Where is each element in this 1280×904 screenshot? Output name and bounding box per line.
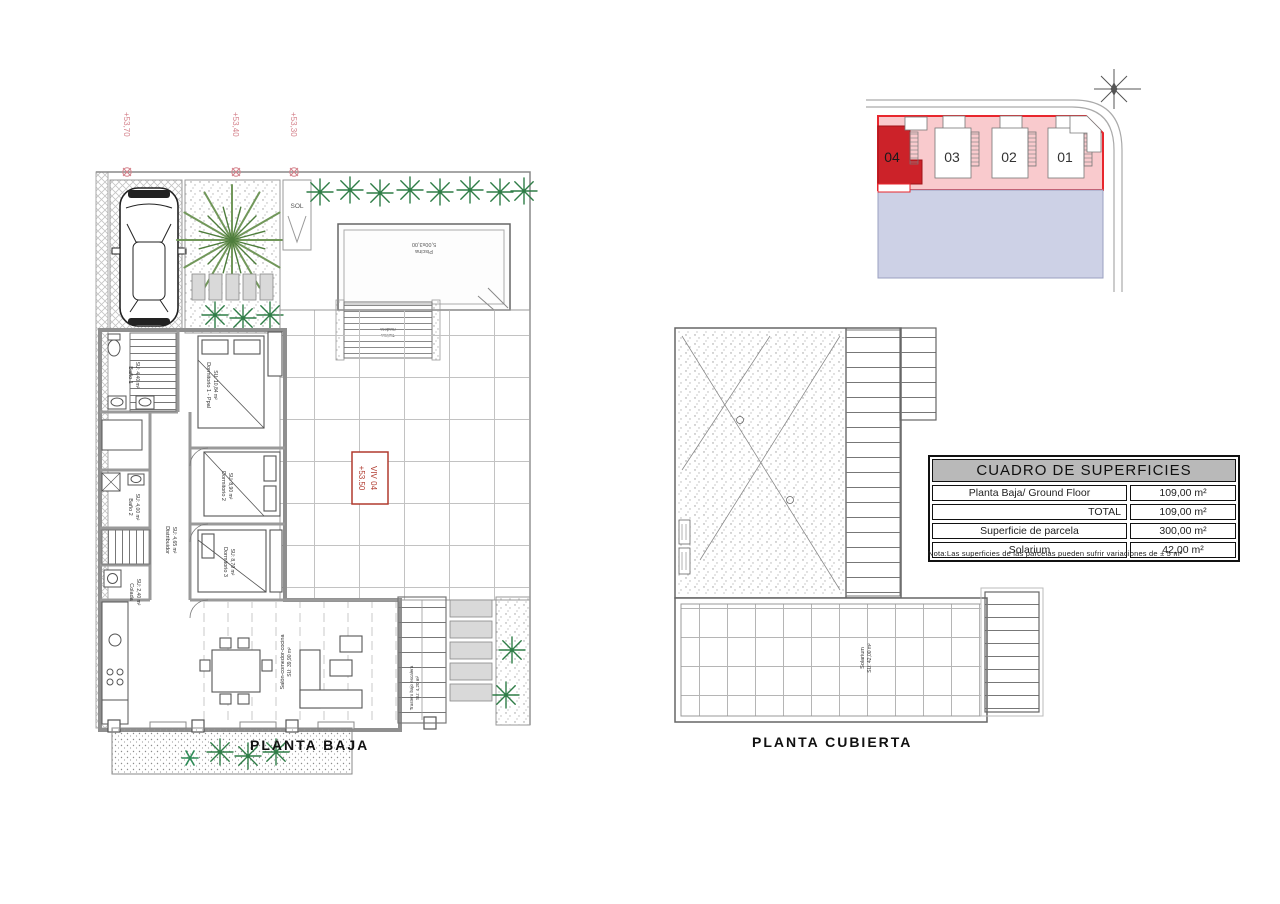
site-plan: 04 03 02 01 (866, 69, 1141, 292)
sol-niche (283, 180, 311, 250)
solarium-label: Solarium (860, 647, 866, 669)
viv-marker: VIV 04 +53.50 (352, 452, 388, 504)
surface-table: CUADRO DE SUPERFICIES Planta Baja/ Groun… (928, 455, 1240, 562)
room-label-bano1: Baño 1 (127, 366, 133, 383)
surface-table-title: CUADRO DE SUPERFICIES (932, 459, 1236, 482)
elevation-label-2: +53,40 (231, 112, 240, 137)
svg-text:SU: 10,84 m²: SU: 10,84 m² (212, 370, 218, 400)
solarium-grid (681, 604, 981, 716)
plan-drawing: SOL Piscina 5,00x3,00 Tarima madera VIV … (0, 0, 1280, 904)
svg-text:SU: 8,70 m²: SU: 8,70 m² (229, 549, 235, 576)
planta-baja-title: PLANTA BAJA (250, 737, 369, 753)
palm-icon (499, 637, 525, 663)
table-row: TOTAL 109,00 m² (932, 504, 1236, 520)
svg-text:SU: 4,20 m²: SU: 4,20 m² (415, 675, 420, 700)
table-row-value: 300,00 m² (1130, 523, 1236, 539)
ground-floor-plan: SOL Piscina 5,00x3,00 Tarima madera VIV … (96, 112, 537, 774)
table-row-label: Planta Baja/ Ground Floor (932, 485, 1127, 501)
svg-text:VIV 04: VIV 04 (369, 466, 378, 491)
site-houses (935, 116, 1101, 178)
bed-dormitorio2 (204, 452, 280, 516)
side-garden (496, 597, 530, 725)
plot-label-01: 01 (1057, 149, 1073, 165)
plant-icon (207, 739, 233, 765)
paver-column (450, 600, 492, 701)
elevation-label-1: +53,70 (122, 112, 131, 137)
plot-label-02: 02 (1001, 149, 1017, 165)
svg-text:SU: 4,65 m²: SU: 4,65 m² (171, 527, 177, 554)
svg-text:SU: 8,90 m²: SU: 8,90 m² (227, 473, 233, 500)
plot-label-03: 03 (944, 149, 960, 165)
table-row: Planta Baja/ Ground Floor 109,00 m² (932, 485, 1236, 501)
plot-04-tab (905, 117, 927, 130)
room-label-dorm1: Dormitorio 1 - Ppal (205, 362, 211, 408)
planta-cubierta-title: PLANTA CUBIERTA (752, 734, 912, 750)
svg-text:SU: 4,40 m²: SU: 4,40 m² (134, 362, 140, 389)
plant-icon (230, 305, 256, 331)
sol-label: SOL (290, 203, 303, 210)
plant-icon (257, 302, 283, 328)
drawing-sheet: SOL Piscina 5,00x3,00 Tarima madera VIV … (0, 0, 1280, 904)
bathroom2-fixtures (102, 473, 144, 491)
room-label-dorm3: Dormitorio 3 (222, 547, 228, 577)
room-label-trastero: Trastero bajo escalera (409, 665, 414, 710)
pool: Piscina 5,00x3,00 (338, 224, 510, 310)
compass-icon (1094, 69, 1141, 109)
svg-text:SU: 2,40 m²: SU: 2,40 m² (135, 579, 141, 606)
table-row: Superficie de parcela 300,00 m² (932, 523, 1236, 539)
kitchen-counter (102, 602, 128, 724)
pool-label: Piscina (414, 248, 433, 254)
hall-cabinet (102, 420, 142, 450)
roof-stair-strip (846, 330, 900, 596)
table-row-label: TOTAL (932, 504, 1127, 520)
palm-icon (493, 682, 519, 708)
solarium-area: SU: 42,00 m² (867, 643, 873, 673)
room-label-distribuidor: Distribuidor (164, 526, 170, 554)
svg-text:+53.50: +53.50 (357, 466, 366, 491)
stairs-hall (102, 530, 150, 564)
car-icon (112, 188, 186, 326)
table-note: Nota:Las superficies de las parcelas pue… (928, 549, 1182, 558)
plot-04-stub (878, 184, 910, 192)
table-row-value: 109,00 m² (1130, 485, 1236, 501)
table-row-value: 109,00 m² (1130, 504, 1236, 520)
exterior-stair (398, 597, 446, 723)
svg-text:SU: 39,90 m²: SU: 39,90 m² (287, 647, 293, 677)
pool-label-size: 5,00x3,00 (412, 241, 436, 247)
laundry-fixtures (104, 570, 121, 587)
solarium-stair (985, 592, 1039, 712)
room-label-colada: Colada (128, 583, 134, 601)
plot-label-04: 04 (884, 149, 900, 165)
svg-text:SU: 4,00 m²: SU: 4,00 m² (134, 494, 140, 521)
plot-04-ladder (910, 132, 918, 164)
table-row-label: Superficie de parcela (932, 523, 1127, 539)
room-label-dorm2: Dormitorio 2 (220, 471, 226, 501)
bed-dormitorio3 (198, 530, 282, 592)
paver-row (192, 274, 273, 300)
elevation-label-3: +53,30 (289, 112, 298, 137)
room-label-salon: Salón-comedor-cocina (280, 634, 286, 690)
site-ground (878, 190, 1103, 278)
palm-row (307, 177, 537, 206)
plant-icon (202, 302, 228, 328)
terrace-grid (280, 310, 530, 600)
room-label-bano2: Baño 2 (127, 498, 133, 515)
roof-right-wing (900, 328, 936, 420)
